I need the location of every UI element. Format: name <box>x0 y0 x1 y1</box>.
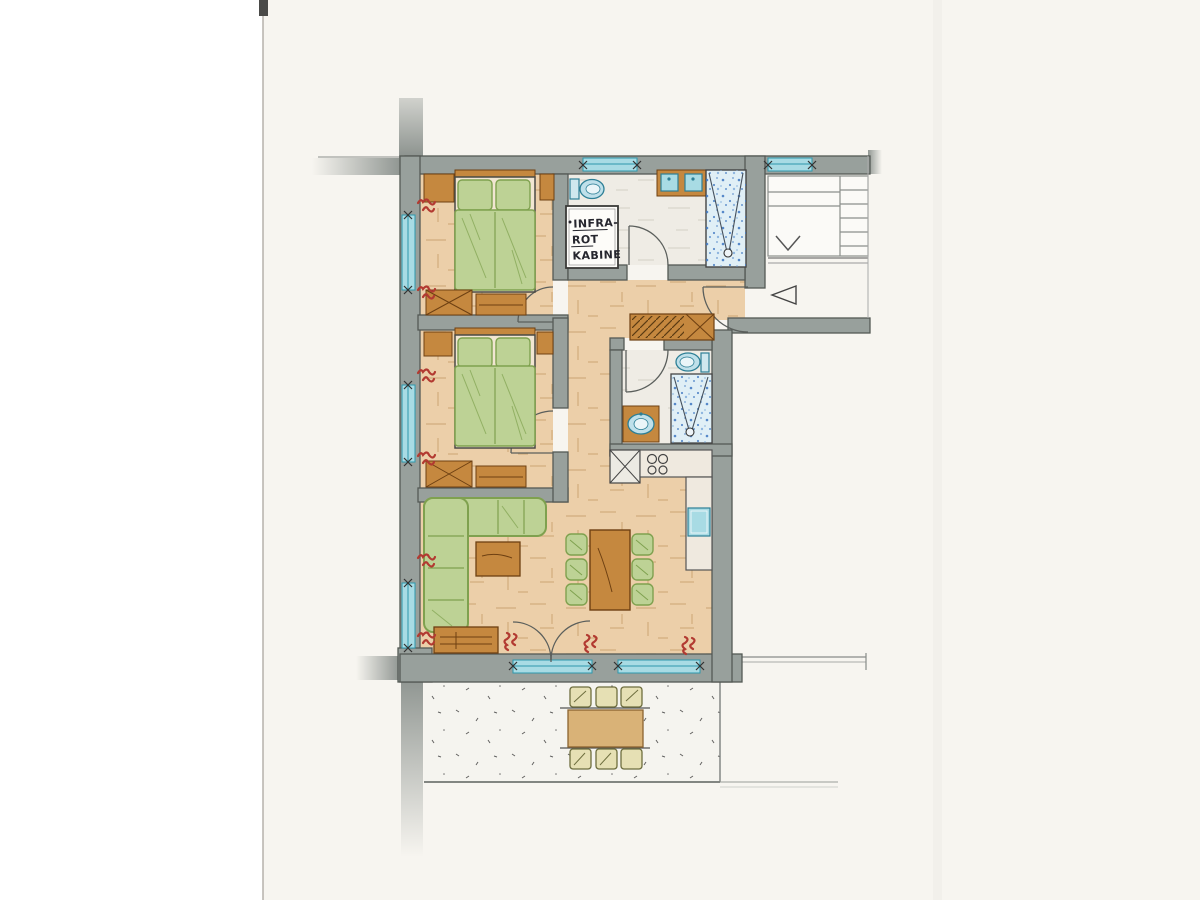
dresser <box>476 466 526 487</box>
hallway-bench <box>630 314 714 340</box>
infrared-cabin-label-line1: INFRA- <box>573 216 618 231</box>
kitchen-sink-symbol <box>688 508 710 536</box>
coffee-table <box>476 542 520 576</box>
double-bed-2 <box>455 328 535 448</box>
dining-chair <box>566 584 587 605</box>
dining-chair <box>632 534 653 555</box>
scan-smudge <box>259 0 268 16</box>
nightstand <box>537 332 553 354</box>
infrared-cabin-label-line3: KABINE <box>572 248 621 263</box>
dining-chair <box>566 559 587 580</box>
shower-drain <box>686 428 694 436</box>
dining-chair <box>566 534 587 555</box>
wall-entry-side <box>728 318 870 333</box>
outdoor-chair <box>621 687 642 707</box>
shower-drain <box>724 249 732 257</box>
wall-right-exterior <box>712 330 732 682</box>
sideboard <box>434 627 498 653</box>
dresser <box>476 294 526 315</box>
pillow <box>496 338 530 367</box>
outdoor-chair <box>570 687 591 707</box>
toilet-symbol <box>570 179 604 199</box>
pillow <box>458 338 492 367</box>
sink-symbol <box>661 174 678 191</box>
dining-chair <box>632 559 653 580</box>
outdoor-table <box>568 710 643 747</box>
sink-vanity <box>623 406 659 442</box>
shaft <box>610 450 640 483</box>
dining-table <box>590 530 630 610</box>
shower-symbol <box>706 170 746 267</box>
infrared-cabin: INFRA- ROT KABINE <box>566 206 621 268</box>
outdoor-chair <box>596 687 617 707</box>
scan-band <box>933 0 942 900</box>
wardrobe <box>426 290 472 315</box>
toilet-symbol <box>676 353 709 372</box>
sink-symbol <box>685 174 702 191</box>
floor-plan-drawing: INFRA- ROT KABINE <box>0 0 1200 900</box>
outdoor-chair <box>621 749 642 769</box>
outdoor-chair <box>596 749 617 769</box>
shower-symbol <box>671 374 712 443</box>
headboard <box>455 328 535 335</box>
wall-stair-separation <box>745 156 765 288</box>
double-bed-1 <box>455 170 535 292</box>
wall-bathroom-2 <box>610 338 624 350</box>
pillow <box>496 180 530 210</box>
dining-set <box>566 530 653 610</box>
nightstand <box>424 174 454 202</box>
headboard <box>455 170 535 177</box>
double-sink-vanity <box>657 170 709 196</box>
infrared-cabin-label-line2: ROT <box>572 233 599 247</box>
nightstand <box>540 174 554 200</box>
terrace-dining-set <box>560 687 650 769</box>
pillow <box>458 180 492 210</box>
outdoor-chair <box>570 749 591 769</box>
dining-chair <box>632 584 653 605</box>
nightstand <box>424 332 452 356</box>
scanned-floor-plan-page: INFRA- ROT KABINE <box>0 0 1200 900</box>
